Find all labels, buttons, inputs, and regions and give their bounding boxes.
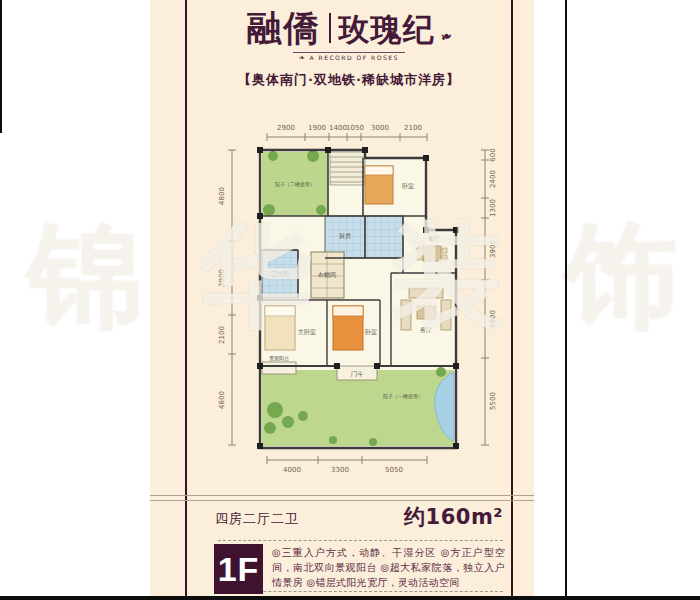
- room-label-bathroom: 卫生间: [271, 270, 289, 278]
- brand-subtitle: 【奥体南门·双地铁·稀缺城市洋房】: [186, 71, 512, 89]
- dim-left-1: 4800: [218, 187, 226, 205]
- dim-right-2: 2400: [489, 170, 497, 188]
- inner-frame-left: [185, 0, 187, 600]
- poster-page: 融僑 玫瑰纪 ❧ ❧A RECORD OF ROSES 【奥体南门·双地铁·稀缺…: [0, 0, 700, 600]
- title-divider: [329, 13, 331, 43]
- dim-top-3: 1400: [329, 124, 347, 132]
- dim-bottom-3: 5050: [385, 466, 403, 474]
- dim-bottom-1: 4000: [283, 466, 301, 474]
- brand-title-right: 玫瑰纪: [339, 14, 435, 45]
- floorplan: 2900 1900 1400 1050 3000 2100 4000 3300 …: [213, 110, 505, 478]
- bed-top: [365, 166, 393, 204]
- watermark-char-1: 锦: [28, 218, 142, 332]
- room-label-courtyard-lower: 院子（一楼使用）: [383, 393, 423, 400]
- divider-double-rule: [150, 495, 534, 501]
- dim-right: [481, 150, 489, 445]
- dim-top-1: 2900: [277, 124, 295, 132]
- dim-left: [228, 150, 236, 445]
- room-label-kitchen: 厨房: [339, 232, 351, 239]
- features-text: ◎三重入户方式，动静、干湿分区 ◎方正户型空间，南北双向景观阳台 ◎超大私家院落…: [272, 545, 505, 590]
- balcony-area: [262, 362, 296, 374]
- inner-frame-right: [511, 0, 513, 600]
- dim-left-2: 3900: [218, 269, 226, 287]
- brand-title: 融僑 玫瑰纪 ❧: [186, 10, 512, 45]
- bed-master: [265, 306, 295, 350]
- stairs: [330, 152, 365, 185]
- bath2-area: [365, 216, 403, 258]
- dim-right-4: 3900: [489, 240, 497, 258]
- tagline-text: A RECORD OF ROSES: [309, 54, 398, 61]
- dim-top-4: 1050: [346, 124, 364, 132]
- area-spec: 约160m²: [404, 503, 503, 531]
- watermark-char-4: 饰: [565, 218, 679, 332]
- dim-top-2: 1900: [308, 124, 326, 132]
- room-label-bedroom-mid: 卧室: [365, 328, 377, 335]
- layout-spec: 四房二厅二卫: [215, 510, 299, 531]
- room-label-closet: 衣帽间: [317, 271, 336, 279]
- room-label-master: 主卧室: [298, 328, 316, 335]
- room-label-bedroom-top: 卧室: [402, 182, 414, 189]
- dim-top-5: 3000: [371, 124, 389, 132]
- brand-header: 融僑 玫瑰纪 ❧ ❧A RECORD OF ROSES 【奥体南门·双地铁·稀缺…: [186, 10, 512, 89]
- dashed-divider-top: [218, 540, 503, 541]
- dim-left-4: 4800: [218, 391, 226, 409]
- room-label-dining: 餐厅: [428, 235, 440, 242]
- floor-badge: 1F: [214, 544, 263, 594]
- edge-line-bottom: [0, 596, 700, 600]
- dim-left-3: 2100: [218, 326, 226, 344]
- dim-right-5: 4900: [489, 310, 497, 328]
- courtyard-lower-area: [262, 370, 454, 446]
- bed-mid: [333, 306, 363, 350]
- dim-top-6: 2100: [404, 124, 422, 132]
- leaf-icon: ❧: [439, 29, 454, 45]
- room-label-courtyard-upper: 院子（二楼使用）: [275, 181, 315, 188]
- spec-row: 四房二厅二卫 约160m²: [215, 503, 503, 531]
- dim-top: [267, 133, 427, 141]
- room-label-living: 客厅: [420, 326, 432, 334]
- brand-title-left: 融僑: [247, 10, 321, 45]
- dim-right-3: 1300: [489, 199, 497, 217]
- brand-tagline: ❧A RECORD OF ROSES: [293, 52, 405, 62]
- dim-right-6: 5500: [489, 392, 497, 410]
- leaf-icon-small: ❧: [299, 54, 306, 62]
- room-label-balcony: 景观阳台: [269, 355, 289, 362]
- dim-right-1: 600: [489, 148, 497, 161]
- dim-bottom-2: 3300: [331, 466, 349, 474]
- dim-bottom: [267, 456, 427, 464]
- edge-line-left: [0, 0, 2, 133]
- room-label-foyer: 门斗: [351, 370, 363, 377]
- edge-line-right: [565, 0, 567, 600]
